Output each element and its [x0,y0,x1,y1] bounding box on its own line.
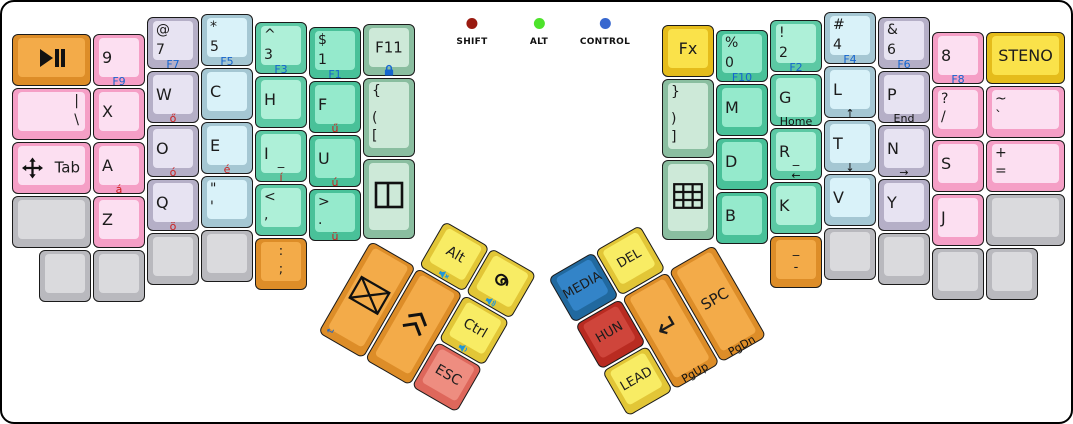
key-braces-left-legend: [ [372,129,377,143]
move-cross-icon [22,158,43,179]
key-n-legend: N [887,141,899,157]
key-bottom-right-2-face [884,237,924,276]
key-t[interactable]: T↓ [824,120,876,172]
key-steno[interactable]: STENO [986,32,1065,84]
key-quote-apostrophe-legend: " [210,182,216,196]
key-greater-period-legend: ü [332,231,339,242]
key-fx[interactable]: Fx [662,25,714,77]
key-at-7-legend: @ [156,23,170,37]
key-y-legend: Y [887,195,897,211]
control-indicator-label: CONTROL [580,37,630,47]
key-asterisk-5-legend: 5 [210,40,219,54]
key-q-legend: Q [156,195,169,211]
key-i-legend: I [264,146,269,162]
key-tab[interactable]: Tab [12,142,91,194]
key-q-legend: ö [170,221,177,232]
key-9[interactable]: 9F9 [93,34,145,86]
key-v[interactable]: V [824,174,876,226]
key-s-legend: S [941,156,951,172]
key-pipe-backslash[interactable]: |\ [12,88,91,140]
key-plus-equals-legend: = [995,164,1007,178]
key-w-legend: W [156,87,172,103]
key-less-comma-legend: , [264,208,268,222]
key-greater-period-legend: > [318,195,330,209]
key-t-legend: T [833,136,843,152]
key-percent-0-legend: F10 [732,72,752,83]
key-o-legend: ó [170,167,177,178]
key-steno-legend: STENO [998,48,1053,64]
key-z-legend: Z [102,212,113,228]
key-exclamation-2[interactable]: !2F2 [770,20,822,72]
key-tilde-backtick-legend: ~ [995,92,1007,106]
key-s[interactable]: S [932,140,984,192]
key-tilde-backtick-legend: ` [995,110,1002,124]
key-less-comma[interactable]: <, [255,184,307,236]
key-i-legend: _ [278,155,285,168]
key-a-legend: á [116,184,123,195]
key-tilde-backtick[interactable]: ~` [986,86,1065,138]
key-blank-left-face [18,200,85,239]
key-braces-right-legend: ) [671,112,676,126]
key-b[interactable]: B [716,192,768,244]
key-percent-0-legend: % [725,36,738,50]
key-blank-left[interactable] [12,196,91,248]
key-j-legend: J [941,210,946,226]
key-n[interactable]: N→ [878,125,930,177]
key-ampersand-6-legend: F6 [897,59,910,70]
key-question-slash-legend: / [941,110,946,124]
key-plus-equals[interactable]: += [986,140,1065,192]
key-greater-period[interactable]: >.ü [309,189,361,241]
key-caret-3[interactable]: ^3F3 [255,22,307,74]
key-bottom-left-1-face [45,254,85,293]
key-h[interactable]: H [255,76,307,128]
key-i[interactable]: I_í [255,130,307,182]
key-colon-semicolon-legend: : [279,245,283,258]
keyboard-layout-frame: |\Tab9F9XAáZ@7F7WőOóQö*5F5CEé"'^3F3HI_í<… [0,0,1073,424]
shift-indicator-dot [467,18,478,29]
key-d[interactable]: D [716,138,768,190]
key-f11-legend: F11 [375,40,403,55]
key-asterisk-5[interactable]: *5F5 [201,14,253,66]
key-r-legend: _ [793,153,800,166]
key-m[interactable]: M [716,84,768,136]
key-caret-3-legend: ^ [264,28,276,42]
key-hash-4-legend: # [833,18,845,32]
key-quote-apostrophe[interactable]: "' [201,176,253,228]
key-dollar-1-legend: 1 [318,53,327,67]
key-at-7-legend: F7 [166,59,179,70]
key-braces-right-legend: } [671,85,680,99]
key-c-legend: C [210,84,221,100]
key-hash-4-legend: F4 [843,54,856,65]
key-8[interactable]: 8F8 [932,32,984,84]
key-exclamation-2-legend: ! [779,26,785,40]
key-hash-4-legend: 4 [833,38,842,52]
key-e[interactable]: Eé [201,122,253,174]
key-caret-3-legend: 3 [264,48,273,62]
key-r-legend: R [779,144,790,160]
key-braces-right[interactable]: })] [662,79,714,158]
key-p[interactable]: PEnd [878,71,930,123]
key-w-legend: ő [170,113,177,124]
key-d-legend: D [725,154,737,170]
key-greater-period-legend: . [318,213,322,227]
key-exclamation-2-legend: 2 [779,46,788,60]
key-bottom-left-4-face [207,234,247,273]
key-ampersand-6-legend: & [887,23,898,37]
alt-indicator-dot [534,18,545,29]
key-n-legend: → [899,167,908,178]
key-y[interactable]: Y [878,179,930,231]
key-9-legend: F9 [112,76,125,87]
key-b-legend: B [725,208,736,224]
key-bottom-right-1-face [830,232,870,271]
key-bottom-left-1[interactable] [39,250,91,302]
key-braces-left[interactable]: {([ [363,78,415,157]
key-9-legend: 9 [102,50,112,66]
indicator-alt: ALT [530,18,548,47]
key-f-legend: F [318,97,327,113]
key-h-legend: H [264,92,276,108]
key-at-7[interactable]: @7F7 [147,17,199,69]
key-asterisk-5-legend: * [210,20,217,34]
key-percent-0-legend: 0 [725,56,734,70]
key-underscore-dash-legend: - [794,261,799,274]
key-bottom-left-3-face [153,237,193,276]
play-pause-icon [37,47,67,69]
key-bottom-left-2-face [99,254,139,293]
key-g-legend: Home [780,116,812,127]
key-l-legend: L [833,82,842,98]
key-p-legend: P [887,87,897,103]
key-w[interactable]: Wő [147,71,199,123]
key-a-legend: A [102,158,113,174]
key-k-legend: K [779,198,790,214]
key-r-legend: ← [791,170,800,181]
key-hash-4[interactable]: #4F4 [824,12,876,64]
key-m-legend: M [725,100,739,116]
key-dollar-1[interactable]: $1F1 [309,27,361,79]
key-k[interactable]: K [770,182,822,234]
key-bottom-right-3-face [938,252,978,291]
key-a[interactable]: Aá [93,142,145,194]
key-dollar-1-legend: $ [318,33,327,47]
key-i-legend: í [279,172,282,183]
key-caret-3-legend: F3 [274,64,287,75]
key-quote-apostrophe-legend: ' [210,200,214,214]
key-tab-legend: Tab [55,161,80,176]
key-p-legend: End [894,113,915,124]
indicator-shift: SHIFT [456,18,487,47]
key-bottom-left-3[interactable] [147,233,199,285]
key-ampersand-6-legend: 6 [887,43,896,57]
key-r[interactable]: R_← [770,128,822,180]
key-braces-left-legend: { [372,84,381,98]
key-bottom-right-4-face [992,252,1032,291]
key-u-legend: ú [332,177,339,188]
key-bottom-right-2[interactable] [878,233,930,285]
key-braces-right-legend: ] [671,130,676,144]
indicator-control: CONTROL [580,18,630,47]
key-percent-0[interactable]: %0F10 [716,30,768,82]
key-underscore-dash[interactable]: _- [770,236,822,288]
alt-indicator-label: ALT [530,37,548,47]
key-colon-semicolon-legend: ; [279,263,283,276]
key-less-comma-legend: < [264,190,276,204]
key-8-legend: 8 [941,48,951,64]
key-plus-equals-legend: + [995,146,1007,160]
lock-icon [384,64,395,76]
key-e-legend: E [210,138,220,154]
key-o-legend: O [156,141,169,157]
key-at-7-legend: 7 [156,43,165,57]
key-colon-semicolon[interactable]: :; [255,238,307,290]
key-x-legend: X [102,104,113,120]
key-blank-right-face [992,198,1059,237]
key-asterisk-5-legend: F5 [220,56,233,67]
key-c[interactable]: C [201,68,253,120]
key-j[interactable]: J [932,194,984,246]
key-f[interactable]: Fű [309,81,361,133]
key-ampersand-6[interactable]: &6F6 [878,17,930,69]
key-question-slash[interactable]: ?/ [932,86,984,138]
key-bottom-right-1[interactable] [824,228,876,280]
key-8-legend: F8 [951,74,964,85]
key-f-legend: ű [332,123,339,134]
key-dollar-1-legend: F1 [328,69,341,80]
key-q[interactable]: Qö [147,179,199,231]
key-pipe-backslash-legend: | [74,94,79,108]
key-g[interactable]: GHome [770,74,822,126]
key-z[interactable]: Z [93,196,145,248]
key-bottom-right-3[interactable] [932,248,984,300]
key-blank-right[interactable] [986,194,1065,246]
control-indicator-dot [600,18,611,29]
key-underscore-dash-legend: _ [793,243,800,256]
key-exclamation-2-legend: F2 [789,62,802,73]
key-u[interactable]: Uú [309,135,361,187]
key-l-legend: ↑ [845,108,854,119]
key-u-legend: U [318,151,330,167]
key-l[interactable]: L↑ [824,66,876,118]
shift-indicator-label: SHIFT [456,37,487,47]
key-t-legend: ↓ [845,162,854,173]
key-question-slash-legend: ? [941,92,948,106]
key-v-legend: V [833,190,844,206]
key-x[interactable]: X [93,88,145,140]
key-bottom-left-2[interactable] [93,250,145,302]
key-braces-left-legend: ( [372,111,377,125]
key-mail-legend: ↵ [324,326,336,339]
key-fx-legend: Fx [679,41,698,57]
key-pipe-backslash-legend: \ [74,113,79,127]
key-o[interactable]: Oó [147,125,199,177]
key-e-legend: é [224,164,231,175]
key-play-pause[interactable] [12,34,91,86]
key-bottom-left-4[interactable] [201,230,253,282]
key-bottom-right-4[interactable] [986,248,1038,300]
key-g-legend: G [779,90,791,106]
key-f11[interactable]: F11 [363,24,415,76]
